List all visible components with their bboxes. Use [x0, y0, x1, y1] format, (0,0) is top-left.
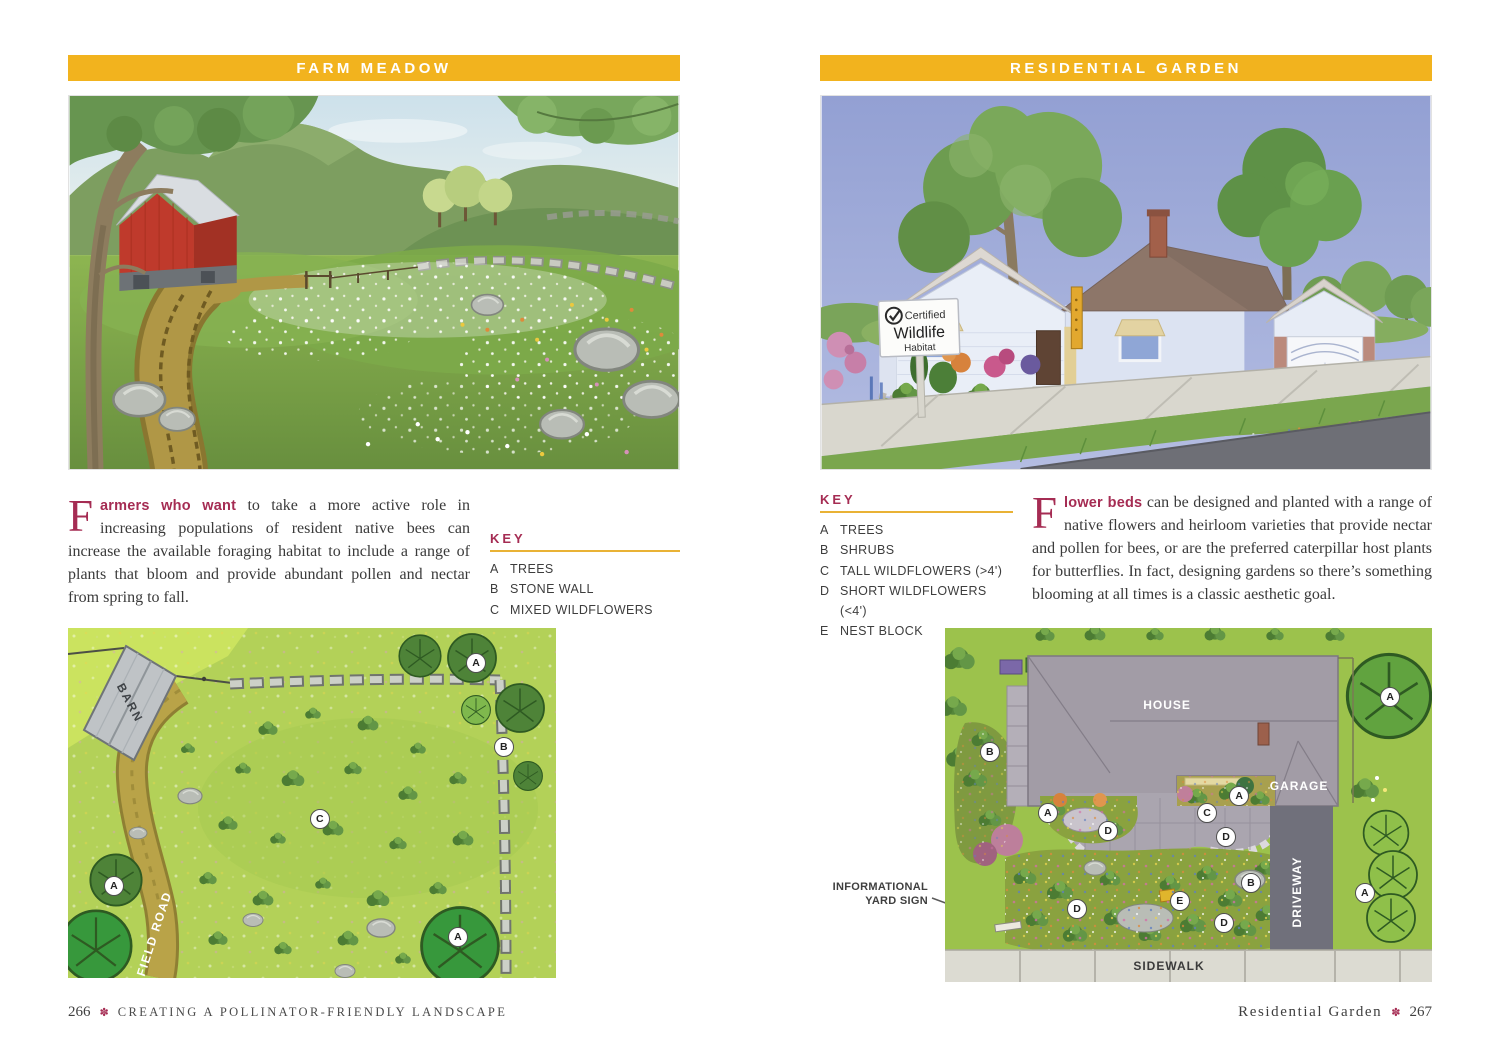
sign-line1: Certified — [905, 309, 946, 322]
flower-icon: ✽ — [100, 1006, 109, 1019]
key-item: BSHRUBS — [820, 540, 1013, 560]
plan-marker-d: D — [1067, 899, 1087, 919]
residential-key: KEY ATREESBSHRUBSCTALL WILDFLOWERS (>4')… — [820, 492, 1013, 642]
book-title: CREATING A POLLINATOR-FRIENDLY LANDSCAPE — [118, 1005, 508, 1020]
flower-icon: ✽ — [1391, 1006, 1400, 1019]
left-footer: 266 ✽ CREATING A POLLINATOR-FRIENDLY LAN… — [68, 1004, 680, 1021]
spacer — [1013, 492, 1032, 642]
plan-marker-e: E — [1170, 891, 1190, 911]
key-title: KEY — [820, 492, 1013, 513]
left-page-header-bar: FARM MEADOW — [68, 55, 680, 81]
lead-in: armers who want — [100, 498, 236, 514]
left-page: FARM MEADOW — [68, 0, 680, 1062]
rock — [575, 329, 639, 370]
right-text-row: KEY ATREESBSHRUBSCTALL WILDFLOWERS (>4')… — [820, 492, 1432, 642]
sign-line3: Habitat — [904, 342, 936, 354]
key-item: CTALL WILDFLOWERS (>4') — [820, 561, 1013, 581]
farm-meadow-scene — [69, 96, 679, 469]
right-footer: Residential Garden ✽ 267 — [820, 1004, 1432, 1021]
plan-marker-a: A — [448, 927, 468, 947]
sign-line2: Wildlife — [893, 324, 945, 343]
plan-marker-c: C — [310, 809, 330, 829]
farm-meadow-illustration — [68, 95, 680, 470]
plan-marker-a: A — [1380, 687, 1400, 707]
right-page-header-bar: RESIDENTIAL GARDEN — [820, 55, 1432, 81]
left-text-row: Farmers who want to take a more active r… — [68, 495, 680, 620]
plan-marker-c: C — [1197, 803, 1217, 823]
plan-marker-b: B — [494, 737, 514, 757]
plan-marker-a: A — [104, 876, 124, 896]
key-item: BSTONE WALL — [490, 579, 680, 599]
residential-intro-paragraph: Flower beds can be designed and planted … — [1032, 492, 1432, 642]
plan-marker-a: A — [466, 653, 486, 673]
residential-garden-illustration: Certified Wildlife Habitat — [820, 95, 1432, 470]
cloud — [482, 142, 581, 160]
key-item: DSHORT WILDFLOWERS (<4') — [820, 581, 1013, 622]
plan-marker-b: B — [1241, 873, 1261, 893]
right-page: RESIDENTIAL GARDEN — [820, 0, 1432, 1062]
rock — [540, 410, 584, 438]
residential-plan-illustration: HOUSE GARAGE DRIVEWAY SIDEWALK ABADCADBE… — [945, 628, 1432, 982]
cloud — [328, 119, 467, 143]
plan-marker-b: B — [980, 742, 1000, 762]
chapter-title: Residential Garden — [1238, 1004, 1382, 1021]
plan-marker-a: A — [1355, 883, 1375, 903]
key-list: ATREESBSTONE WALLCMIXED WILDFLOWERS — [490, 559, 680, 620]
rock — [159, 408, 195, 431]
drop-cap: F — [68, 495, 100, 534]
plan-marker-a: A — [1229, 786, 1249, 806]
right-page-title: RESIDENTIAL GARDEN — [1010, 60, 1242, 77]
page-number: 267 — [1410, 1004, 1433, 1021]
key-item: CMIXED WILDFLOWERS — [490, 600, 680, 620]
plan-marker-d: D — [1216, 827, 1236, 847]
drop-cap: F — [1032, 492, 1064, 531]
page-number: 266 — [68, 1004, 91, 1021]
key-title: KEY — [490, 531, 680, 552]
left-page-title: FARM MEADOW — [296, 60, 451, 77]
rock — [471, 295, 503, 316]
farm-key: KEY ATREESBSTONE WALLCMIXED WILDFLOWERS — [490, 531, 680, 620]
residential-plan-markers: ABADCADBEDDA — [945, 628, 1432, 982]
key-item: ATREES — [490, 559, 680, 579]
farm-plan-illustration: BARN — [68, 628, 556, 978]
farm-intro-paragraph: Farmers who want to take a more active r… — [68, 495, 470, 620]
lead-in: lower beds — [1064, 495, 1142, 511]
residential-plan-row: INFORMATIONAL YARD SIGN — [820, 628, 1432, 982]
rock — [113, 383, 165, 417]
residential-scene: Certified Wildlife Habitat — [821, 96, 1431, 469]
farm-plan-markers: ABCAA — [68, 628, 556, 978]
key-item: ATREES — [820, 520, 1013, 540]
yard-sign-annotation: INFORMATIONAL YARD SIGN — [826, 880, 928, 909]
plan-marker-a: A — [1038, 803, 1058, 823]
nest-block-post — [1071, 287, 1082, 349]
plan-marker-d: D — [1098, 821, 1118, 841]
farm-plan-row: BARN — [68, 628, 680, 978]
plan-marker-d: D — [1214, 913, 1234, 933]
spacer — [470, 495, 490, 620]
key-list: ATREESBSHRUBSCTALL WILDFLOWERS (>4')DSHO… — [820, 520, 1013, 642]
rock — [624, 381, 679, 417]
